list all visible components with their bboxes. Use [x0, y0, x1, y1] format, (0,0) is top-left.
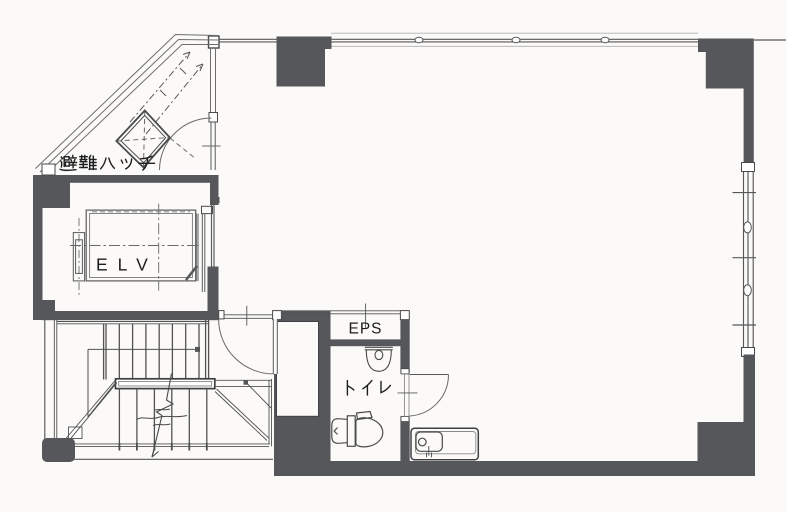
svg-text:EPS: EPS	[349, 321, 383, 338]
svg-text:ELV: ELV	[96, 255, 158, 275]
